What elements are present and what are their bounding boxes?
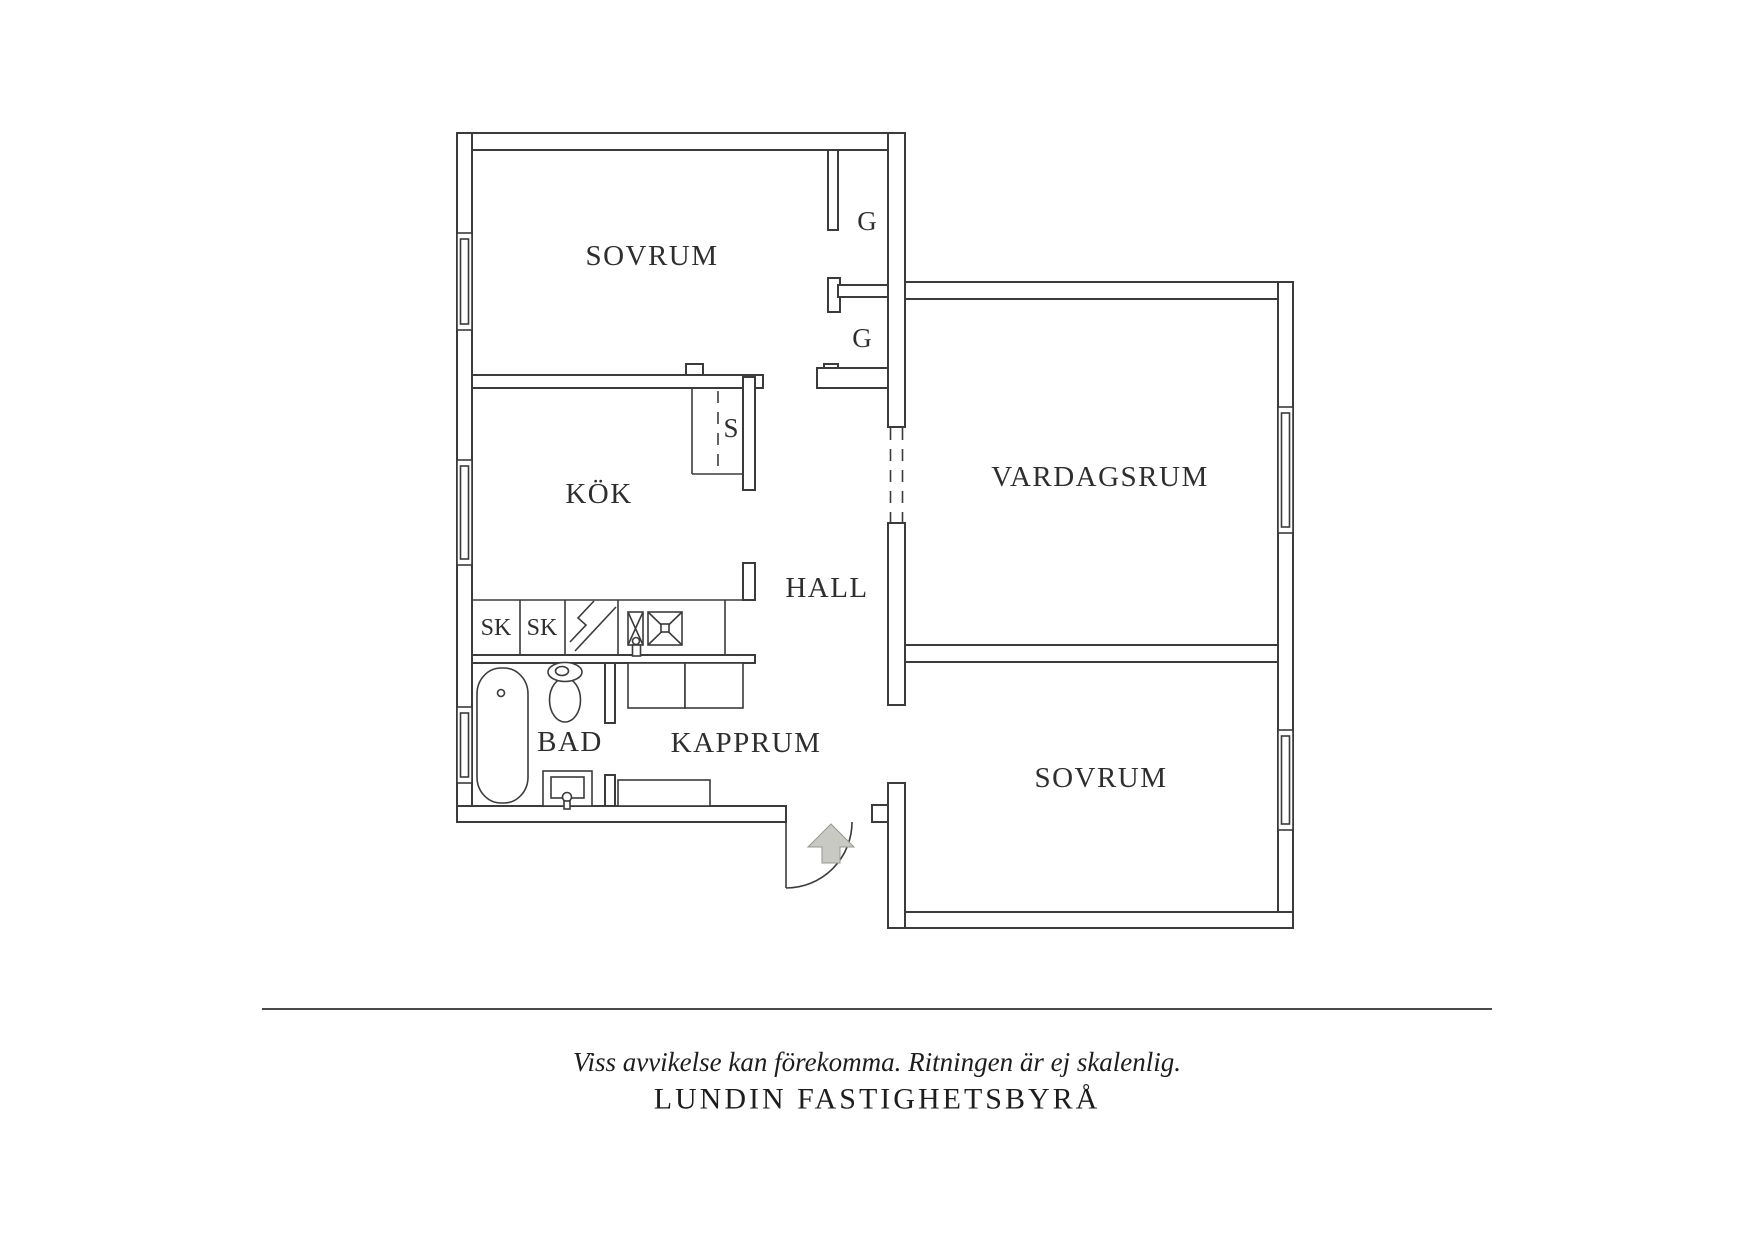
wall-hall-divider-upper <box>888 133 905 427</box>
wall-g1-g2-divider <box>838 285 888 297</box>
kitchen-sink-icon <box>628 612 682 656</box>
label-wardrobe-bottom: G <box>852 323 872 353</box>
entrance-arrow-icon <box>808 824 854 863</box>
stove-icon <box>570 601 616 651</box>
wall-hall-divider-lower <box>888 523 905 705</box>
footer: Viss avvikelse kan förekomma. Ritningen … <box>262 1009 1492 1116</box>
wall-top-left-block <box>457 133 903 150</box>
window-bedroom-top <box>457 233 472 330</box>
wall-bedroom-kitchen-divider <box>472 375 763 388</box>
wall-g2-bottom <box>817 368 888 388</box>
wall-east <box>1278 282 1293 928</box>
wall-bottom-west <box>457 806 786 822</box>
window-bathroom <box>457 707 472 783</box>
label-bathroom: BAD <box>537 726 603 758</box>
window-kitchen <box>457 460 472 565</box>
walls <box>457 133 1293 928</box>
wall-entry-jamb <box>872 805 888 822</box>
wall-kitchen-east-lower <box>743 563 755 600</box>
kitchen-counter <box>472 600 743 656</box>
label-cleaning-closet: S <box>723 413 738 443</box>
wall-g1-west <box>828 150 838 230</box>
label-livingroom: VARDAGSRUM <box>991 461 1209 493</box>
label-cabinet-2: SK <box>527 615 558 641</box>
wall-bath-east-upper <box>605 663 615 723</box>
footer-brand: LUNDIN FASTIGHETSBYRÅ <box>654 1083 1101 1116</box>
livingroom-opening <box>891 428 903 522</box>
wall-livingroom-bedroom-divider <box>905 645 1278 662</box>
bathroom-sink-icon <box>543 771 592 809</box>
wardrobe-box <box>685 663 743 708</box>
label-bedroom-bottom: SOVRUM <box>1034 762 1167 794</box>
wardrobe-box <box>628 663 685 708</box>
toilet-icon <box>548 663 582 723</box>
wall-kitchen-bath-divider <box>472 655 755 663</box>
label-bedroom-top: SOVRUM <box>585 240 718 272</box>
wall-bath-east-lower <box>605 775 615 806</box>
label-cabinet-1: SK <box>481 615 512 641</box>
label-cloakroom: KAPPRUM <box>671 727 822 759</box>
label-hall: HALL <box>785 572 868 604</box>
wall-bedroom2-bottom <box>888 912 1293 928</box>
window-bedroom-bottom <box>1278 730 1293 830</box>
door-swing-arc <box>786 822 852 888</box>
label-wardrobe-top: G <box>857 206 877 236</box>
bench-box <box>618 780 710 806</box>
entrance-door <box>786 822 854 888</box>
bathtub-icon <box>477 668 528 803</box>
wall-livingroom-top <box>903 282 1293 299</box>
footer-disclaimer: Viss avvikelse kan förekomma. Ritningen … <box>573 1047 1181 1077</box>
label-kitchen: KÖK <box>565 478 632 510</box>
wall-kitchen-east-upper <box>743 377 755 490</box>
window-livingroom <box>1278 407 1293 533</box>
floor-plan: SOVRUM KÖK VARDAGSRUM HALL BAD KAPPRUM S… <box>0 0 1754 1240</box>
wall-bedroom2-west <box>888 783 905 928</box>
